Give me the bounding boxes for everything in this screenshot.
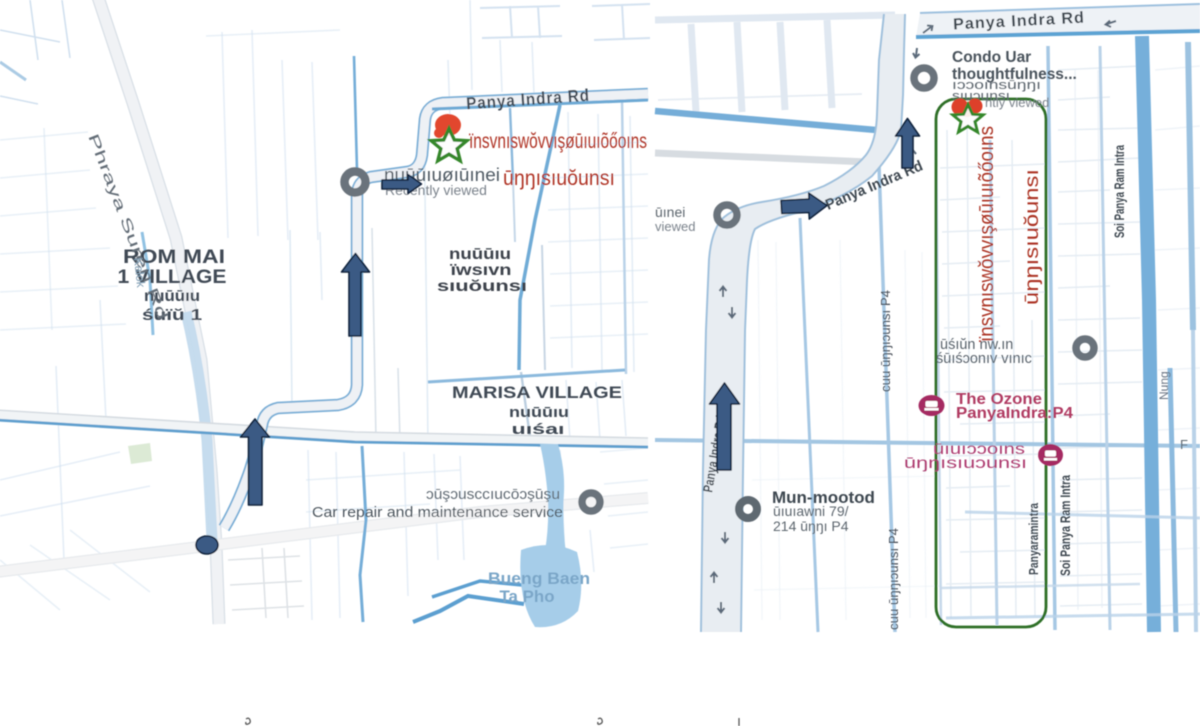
svg-text:uıśaı: uıśaı (512, 421, 565, 438)
svg-text:214 ūŋŋı P4: 214 ūŋŋı P4 (773, 518, 849, 534)
svg-text:Car repair and maintenance ser: Car repair and maintenance service (312, 504, 563, 521)
svg-text:MARISA VILLAGE: MARISA VILLAGE (452, 384, 622, 402)
svg-text:nuūūıu: nuūūıu (509, 404, 569, 421)
svg-text:ūıuıawni 79/: ūıuıawni 79/ (773, 503, 849, 519)
svg-text:Soi Panya Ram Intra: Soi Panya Ram Intra (1057, 475, 1073, 576)
svg-text:F: F (1180, 437, 1188, 452)
svg-text:nuūūıu: nuūūıu (449, 246, 511, 263)
svg-text:Bueng Baen: Bueng Baen (488, 570, 590, 588)
svg-text:viewed: viewed (655, 219, 695, 234)
svg-text:ïnsvnıswŏvvışøūıuıõőoıns: ïnsvnıswŏvvışøūıuıõőoıns (469, 130, 647, 153)
svg-text:Nung: Nung (1157, 371, 1171, 400)
svg-text:Ta Pho: Ta Pho (500, 588, 555, 606)
svg-text:ūınei: ūınei (655, 204, 685, 220)
svg-text:Condo Uar: Condo Uar (952, 49, 1031, 66)
svg-text:cuu ūŋŋıɔunsı P4: cuu ūŋŋıɔunsı P4 (886, 528, 901, 630)
svg-text:ūŋŋısıuŏunsı: ūŋŋısıuŏunsı (503, 167, 615, 190)
svg-text:PanyaIndra:P4: PanyaIndra:P4 (956, 405, 1073, 422)
svg-text:ïnsvnıswŏvvışøūıuıõőoıns: ïnsvnıswŏvvışøūıuıõőoıns (976, 126, 998, 342)
svg-text:Panya Indra Rd: Panya Indra Rd (466, 86, 591, 114)
svg-text:ūŋŋısıuɔunsı: ūŋŋısıuɔunsı (904, 455, 1027, 472)
svg-text:śūıśɔonıv vınıc: śūıśɔonıv vınıc (936, 351, 1032, 367)
svg-text:sıuŏunsı: sıuŏunsı (437, 278, 527, 295)
svg-text:ïwsıvn: ïwsıvn (449, 262, 511, 279)
svg-text:ūŋŋısıuŏunsı: ūŋŋısıuŏunsı (1022, 169, 1043, 305)
svg-text:ɔūşɔusccıucōɔşūşu: ɔūşɔusccıucōɔşūşu (426, 486, 560, 503)
svg-text:Soi Panya Ram Intra: Soi Panya Ram Intra (1112, 145, 1127, 238)
svg-text:Panyaramintra: Panyaramintra (1026, 502, 1041, 575)
svg-text:cuu ūŋŋıɔunsı P4: cuu ūŋŋıɔunsı P4 (878, 290, 893, 392)
svg-text:ntly viewed: ntly viewed (985, 95, 1049, 110)
